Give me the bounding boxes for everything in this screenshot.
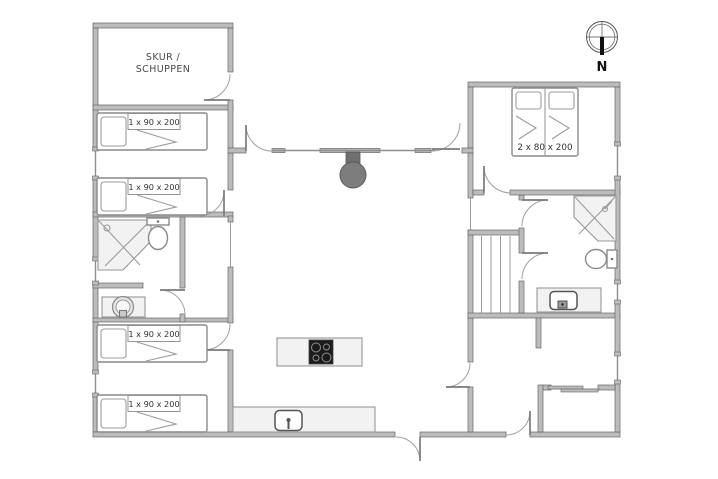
door-main-entrance [396, 437, 420, 461]
bed-single-3: 1 x 90 x 200 [97, 325, 207, 362]
door-shed [204, 74, 230, 100]
window-left-3 [93, 370, 99, 397]
walls [93, 23, 620, 437]
door-entrance-nw [246, 125, 272, 151]
window-right-2 [615, 280, 621, 304]
vanity-left [102, 297, 145, 318]
doors [160, 74, 548, 461]
bed-single-2: 1 x 90 x 200 [97, 178, 207, 215]
window-right-1 [615, 142, 621, 180]
floor-plan: 1 x 90 x 200 1 x 90 x 200 1 x 90 x 200 1… [0, 0, 718, 479]
shed-label-line1: SKUR / [146, 52, 181, 63]
compass-north-label: N [597, 60, 608, 75]
bed-label: 1 x 90 x 200 [128, 399, 179, 409]
sliding-door-panel-2 [561, 389, 598, 392]
shower-right [574, 196, 616, 241]
door-living-to-hall [446, 363, 470, 387]
sliding-door-panel-1 [548, 386, 583, 389]
bed-label: 1 x 90 x 200 [128, 329, 179, 339]
door-bedroom-left-bottom [204, 324, 230, 350]
door-bedroom-right [484, 166, 511, 193]
bed-single-4: 1 x 90 x 200 [97, 395, 207, 432]
bed-single-1: 1 x 90 x 200 [97, 113, 207, 150]
room-label-shed: SKUR / SCHUPPEN [136, 52, 191, 75]
floor-plan-page: 1 x 90 x 200 1 x 90 x 200 1 x 90 x 200 1… [0, 0, 718, 479]
door-entrance-ne [432, 123, 460, 151]
toilet-left [147, 218, 169, 250]
bed-label: 1 x 90 x 200 [128, 117, 179, 127]
door-back-entrance [506, 411, 530, 435]
door-sink-room [160, 290, 185, 315]
bed-double: 2 x 80 x 200 [512, 88, 578, 156]
vanity-right [537, 288, 601, 312]
compass-rose: N [587, 22, 618, 76]
door-bathroom-right-bottom [522, 253, 548, 279]
bed-double-label: 2 x 80 x 200 [517, 143, 573, 153]
window-right-3 [615, 352, 621, 384]
shed-label-line2: SCHUPPEN [136, 64, 191, 75]
stairs [482, 236, 511, 313]
door-bathroom-right-top [522, 200, 548, 226]
window-left-1 [93, 147, 99, 180]
kitchen-counter [233, 407, 375, 432]
wood-stove [340, 152, 366, 188]
toilet-right [586, 250, 618, 269]
kitchen-island [277, 338, 362, 366]
bed-label: 1 x 90 x 200 [128, 182, 179, 192]
shower-left [98, 220, 151, 270]
